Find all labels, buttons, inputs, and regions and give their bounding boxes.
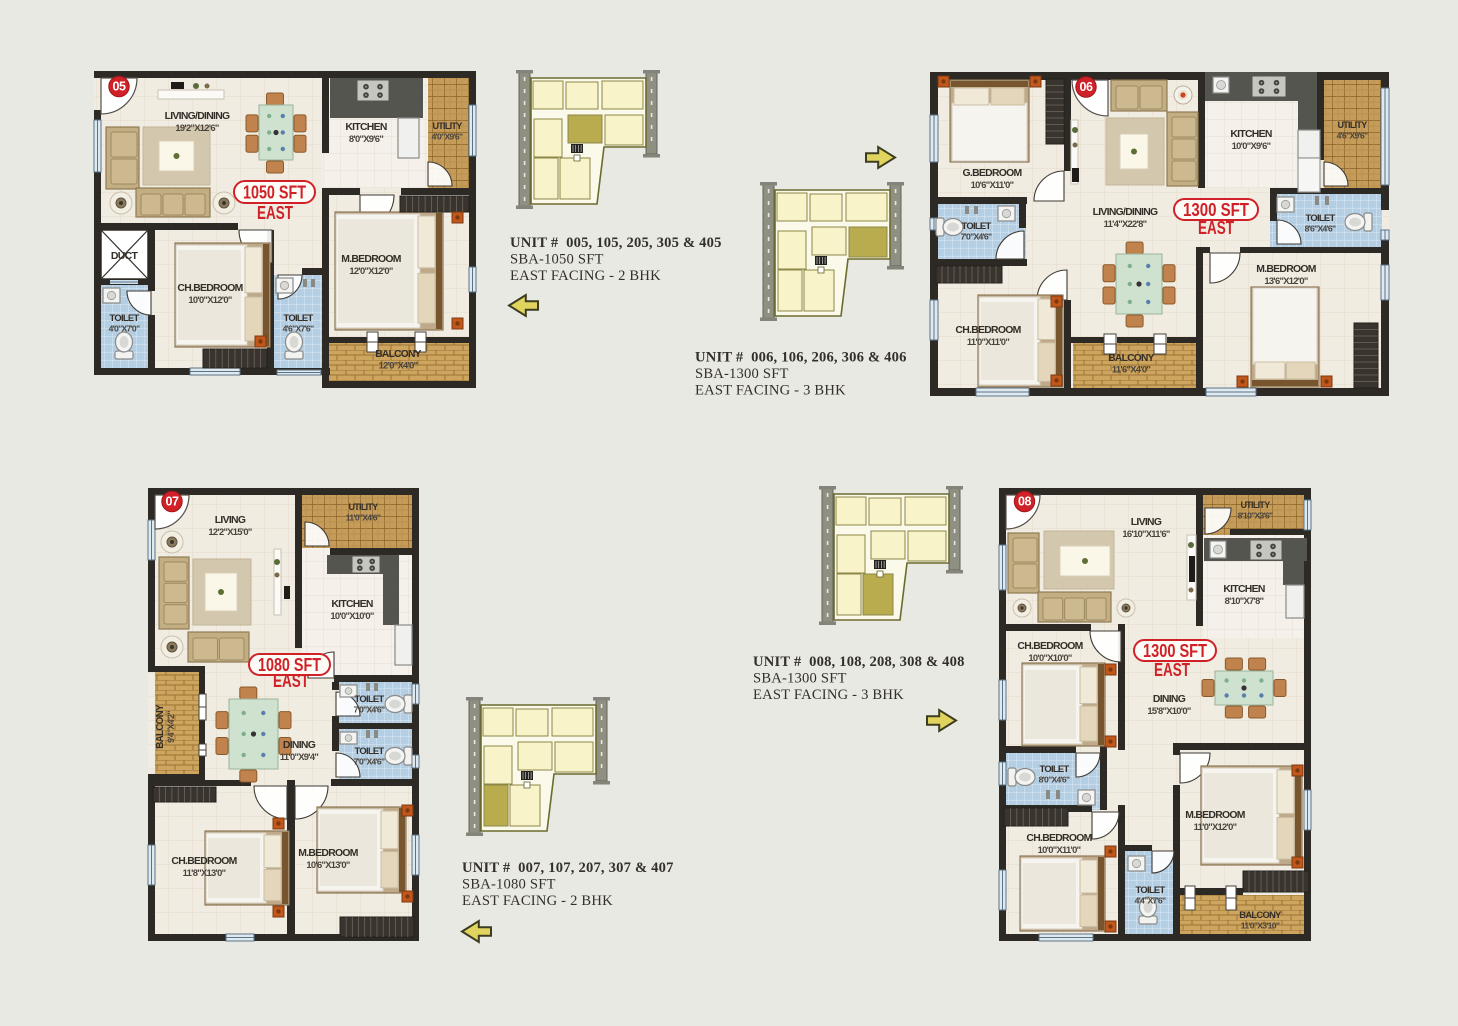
- svg-text:KITCHEN: KITCHEN: [345, 122, 386, 133]
- svg-text:11'0"X3'10": 11'0"X3'10": [1241, 921, 1280, 931]
- svg-text:UTILITY: UTILITY: [1240, 500, 1270, 510]
- svg-text:LIVING/DINING: LIVING/DINING: [165, 111, 230, 122]
- svg-text:4'6"X7'6": 4'6"X7'6": [283, 324, 314, 334]
- svg-text:CH.BEDROOM: CH.BEDROOM: [1017, 641, 1082, 652]
- svg-text:13'6"X12'0": 13'6"X12'0": [1264, 275, 1307, 286]
- svg-text:TOILET: TOILET: [962, 220, 992, 231]
- svg-text:11'8"X13'0": 11'8"X13'0": [183, 867, 226, 878]
- svg-text:UTILITY: UTILITY: [348, 502, 378, 512]
- svg-text:TOILET: TOILET: [1306, 212, 1336, 223]
- svg-text:EAST FACING - 2 BHK: EAST FACING - 2 BHK: [462, 893, 613, 909]
- svg-text:CH.BEDROOM: CH.BEDROOM: [955, 325, 1020, 336]
- svg-text:LIVING: LIVING: [1131, 517, 1162, 528]
- svg-text:UNIT # 006, 106, 206, 306 & 4: UNIT # 006, 106, 206, 306 & 406: [695, 350, 907, 366]
- svg-text:TOILET: TOILET: [1136, 884, 1166, 895]
- svg-text:LIVING/DINING: LIVING/DINING: [1093, 207, 1158, 218]
- svg-text:12'0"X12'0": 12'0"X12'0": [349, 265, 392, 276]
- svg-text:BALCONY: BALCONY: [375, 349, 421, 360]
- svg-text:7'0"X4'6": 7'0"X4'6": [354, 705, 385, 715]
- svg-text:TOILET: TOILET: [355, 745, 385, 756]
- svg-text:9'4"X4'2": 9'4"X4'2": [166, 711, 176, 743]
- svg-text:4'4"X7'6": 4'4"X7'6": [1135, 896, 1166, 906]
- svg-text:M.BEDROOM: M.BEDROOM: [1185, 810, 1245, 821]
- svg-text:16'10"X11'6": 16'10"X11'6": [1122, 528, 1169, 539]
- svg-text:11'6"X4'0": 11'6"X4'0": [1112, 364, 1150, 375]
- svg-text:DINING: DINING: [1153, 694, 1186, 705]
- svg-text:8'0"X9'6": 8'0"X9'6": [349, 133, 383, 144]
- svg-text:EAST: EAST: [273, 670, 310, 691]
- svg-text:EAST: EAST: [257, 202, 294, 223]
- svg-text:EAST FACING - 3 BHK: EAST FACING - 3 BHK: [695, 383, 846, 399]
- svg-text:KITCHEN: KITCHEN: [331, 599, 372, 610]
- svg-text:DUCT: DUCT: [111, 250, 139, 262]
- svg-text:11'4"X22'8": 11'4"X22'8": [1104, 218, 1147, 229]
- svg-text:M.BEDROOM: M.BEDROOM: [298, 848, 358, 859]
- svg-text:10'0"X12'0": 10'0"X12'0": [188, 294, 231, 305]
- svg-text:11'0"X11'0": 11'0"X11'0": [967, 336, 1009, 347]
- svg-text:UTILITY: UTILITY: [432, 121, 462, 131]
- svg-text:TOILET: TOILET: [110, 312, 140, 323]
- svg-text:10'0"X10'0": 10'0"X10'0": [1028, 652, 1071, 663]
- svg-text:4'0"X7'0": 4'0"X7'0": [109, 324, 140, 334]
- svg-text:19'2"X12'6": 19'2"X12'6": [175, 122, 218, 133]
- svg-text:4'0"X9'6": 4'0"X9'6": [432, 132, 463, 142]
- svg-text:15'8"X10'0": 15'8"X10'0": [1147, 705, 1190, 716]
- svg-text:EAST: EAST: [1154, 659, 1191, 680]
- svg-text:8'0"X4'6": 8'0"X4'6": [1039, 775, 1070, 785]
- svg-text:SBA-1080 SFT: SBA-1080 SFT: [462, 877, 556, 893]
- svg-text:CH.BEDROOM: CH.BEDROOM: [1026, 833, 1091, 844]
- svg-text:10'0"X9'6": 10'0"X9'6": [1232, 140, 1271, 151]
- svg-text:DINING: DINING: [283, 740, 316, 751]
- svg-text:8'10"X7'8": 8'10"X7'8": [1225, 595, 1264, 606]
- svg-text:CH.BEDROOM: CH.BEDROOM: [177, 283, 242, 294]
- svg-text:12'0"X4'0": 12'0"X4'0": [379, 360, 418, 371]
- svg-text:8'6"X4'6": 8'6"X4'6": [1305, 224, 1336, 234]
- svg-text:BALCONY: BALCONY: [155, 704, 166, 749]
- svg-text:4'6"X9'6": 4'6"X9'6": [1337, 131, 1368, 141]
- svg-text:LIVING: LIVING: [215, 515, 246, 526]
- svg-text:11'0"X9'4": 11'0"X9'4": [280, 751, 318, 762]
- svg-text:10'0"X10'0": 10'0"X10'0": [330, 610, 373, 621]
- svg-text:EAST: EAST: [1198, 217, 1235, 238]
- svg-text:UNIT # 008, 108, 208, 308 & 4: UNIT # 008, 108, 208, 308 & 408: [753, 654, 965, 670]
- svg-text:7'0"X4'6": 7'0"X4'6": [961, 232, 992, 242]
- svg-text:TOILET: TOILET: [1040, 763, 1070, 774]
- svg-text:08: 08: [1018, 495, 1031, 509]
- svg-text:UNIT # 005, 105, 205, 305 & 4: UNIT # 005, 105, 205, 305 & 405: [510, 235, 722, 251]
- svg-text:10'0"X11'0": 10'0"X11'0": [1038, 844, 1081, 855]
- svg-text:11'0"X12'0": 11'0"X12'0": [1194, 821, 1237, 832]
- svg-text:10'6"X11'0": 10'6"X11'0": [971, 179, 1014, 190]
- svg-text:UTILITY: UTILITY: [1337, 120, 1367, 130]
- svg-text:G.BEDROOM: G.BEDROOM: [963, 168, 1022, 179]
- svg-text:1050 SFT: 1050 SFT: [243, 181, 307, 202]
- svg-text:EAST FACING - 3 BHK: EAST FACING - 3 BHK: [753, 687, 904, 703]
- svg-text:1300 SFT: 1300 SFT: [1143, 640, 1208, 661]
- svg-text:06: 06: [1080, 80, 1093, 94]
- svg-text:M.BEDROOM: M.BEDROOM: [1256, 264, 1316, 275]
- svg-text:8'10"X3'6": 8'10"X3'6": [1238, 511, 1273, 521]
- svg-text:BALCONY: BALCONY: [1239, 909, 1282, 920]
- svg-text:SBA-1300 SFT: SBA-1300 SFT: [753, 671, 847, 687]
- svg-text:7'0"X4'6": 7'0"X4'6": [354, 757, 385, 767]
- svg-text:TOILET: TOILET: [284, 312, 314, 323]
- svg-text:UNIT # 007, 107, 207, 307 & 4: UNIT # 007, 107, 207, 307 & 407: [462, 860, 674, 876]
- svg-text:05: 05: [113, 80, 126, 94]
- svg-text:KITCHEN: KITCHEN: [1230, 129, 1271, 140]
- svg-text:M.BEDROOM: M.BEDROOM: [341, 254, 401, 265]
- svg-text:10'6"X13'0": 10'6"X13'0": [306, 859, 349, 870]
- svg-text:SBA-1300 SFT: SBA-1300 SFT: [695, 366, 789, 382]
- svg-text:TOILET: TOILET: [355, 693, 385, 704]
- svg-text:07: 07: [166, 495, 179, 509]
- svg-text:CH.BEDROOM: CH.BEDROOM: [171, 856, 236, 867]
- svg-text:KITCHEN: KITCHEN: [1223, 584, 1264, 595]
- svg-text:12'2"X15'0": 12'2"X15'0": [208, 526, 251, 537]
- svg-text:SBA-1050 SFT: SBA-1050 SFT: [510, 252, 604, 268]
- svg-text:BALCONY: BALCONY: [1108, 353, 1154, 364]
- svg-text:11'0"X4'6": 11'0"X4'6": [346, 513, 381, 523]
- svg-text:EAST FACING - 2 BHK: EAST FACING - 2 BHK: [510, 268, 661, 284]
